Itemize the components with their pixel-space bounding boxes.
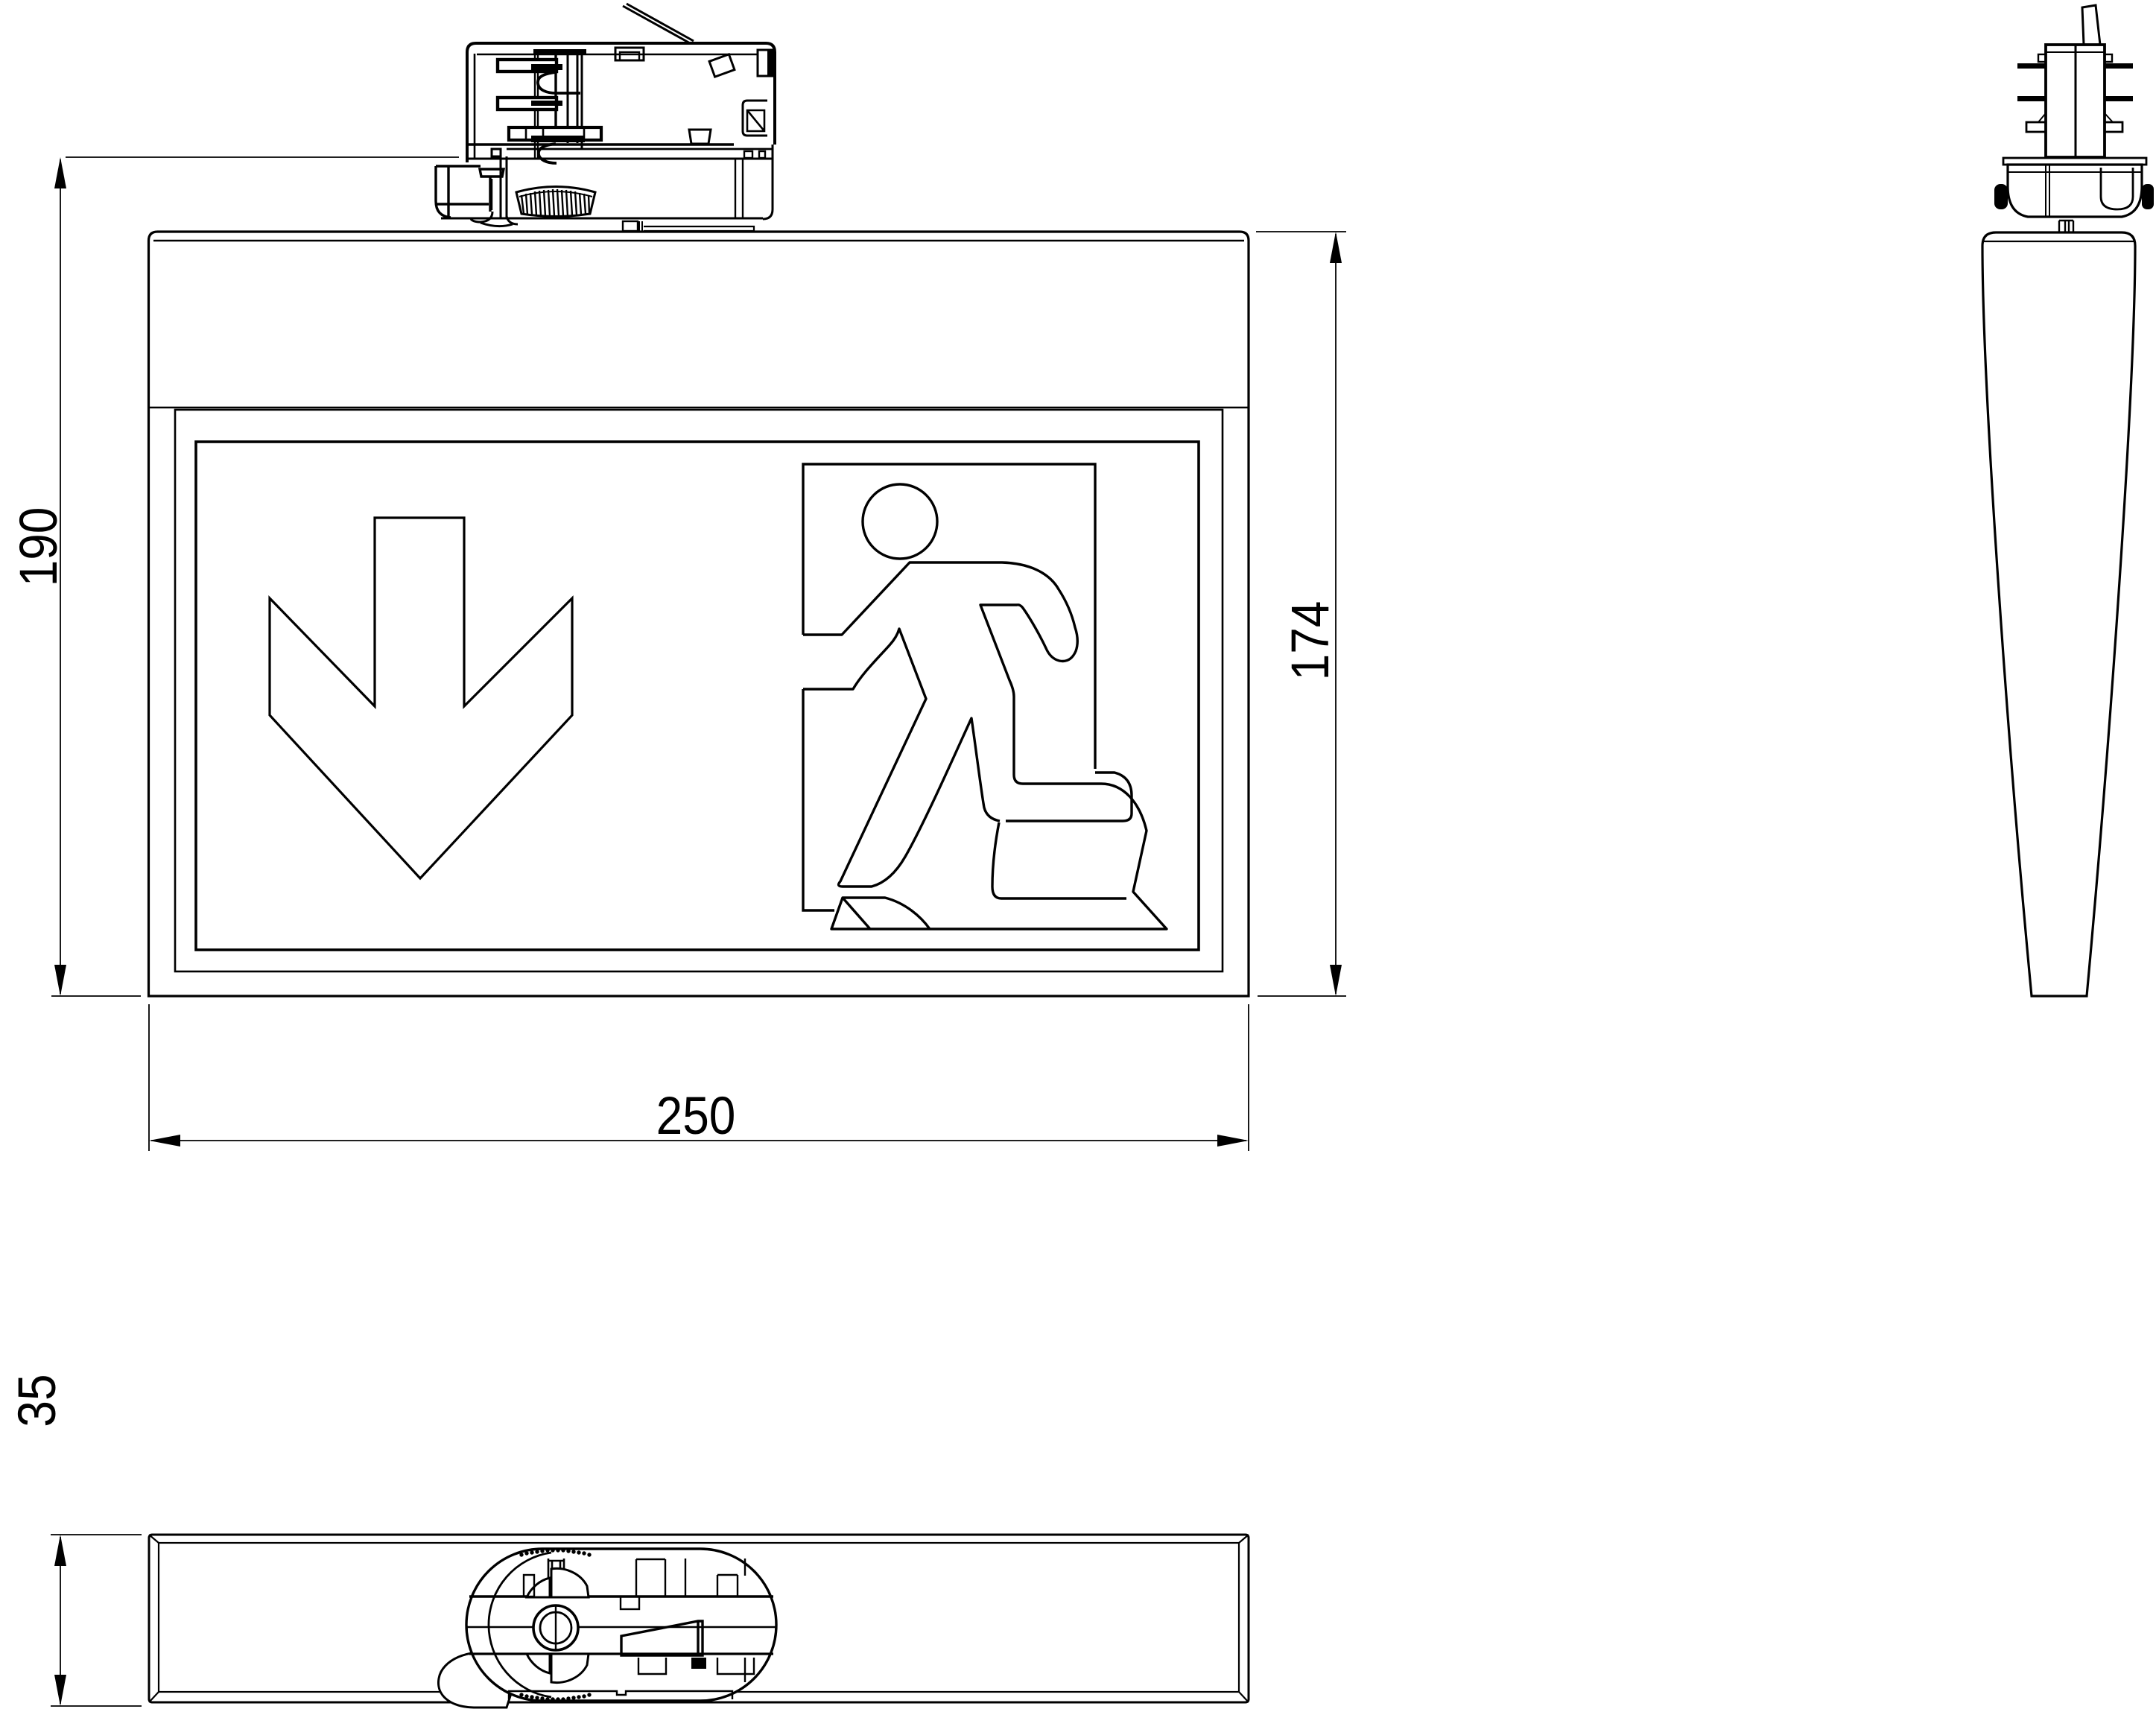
svg-text:250: 250 (656, 1086, 736, 1146)
svg-text:35: 35 (7, 1374, 67, 1427)
svg-text:174: 174 (1281, 601, 1340, 681)
svg-text:190: 190 (9, 507, 69, 587)
